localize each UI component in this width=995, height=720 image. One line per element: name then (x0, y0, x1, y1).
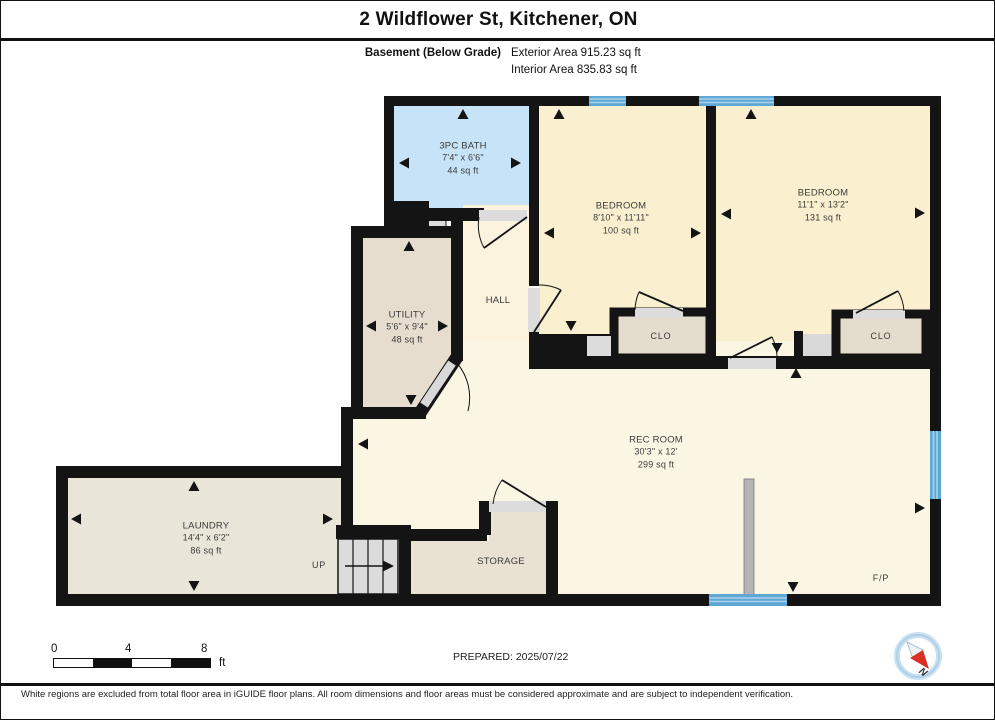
scale-num-4: 4 (125, 643, 131, 655)
room-label-hall: HALL (486, 295, 511, 307)
bedroom2-niche (801, 334, 833, 358)
room-label-bath: 3PC BATH 7'4" x 6'6" 44 sq ft (439, 140, 486, 177)
fireplace-post (744, 479, 754, 596)
room-label-bedroom2: BEDROOM 11'1" x 13'2" 131 sq ft (797, 187, 848, 224)
room-label-laundry: LAUNDRY 14'4" x 6'2" 86 sq ft (183, 520, 230, 557)
room-label-closet2: CLO (871, 331, 892, 343)
stairs-up-label: UP (312, 560, 326, 572)
scale-num-0: 0 (51, 643, 57, 655)
prepared-date: PREPARED: 2025/07/22 (453, 651, 568, 663)
stairs-icon (338, 539, 398, 594)
scale-unit: ft (219, 657, 225, 669)
floorplan-page: 2 Wildflower St, Kitchener, ON Basement … (0, 0, 995, 720)
room-label-recroom: REC ROOM 30'3" x 12' 299 sq ft (629, 434, 683, 471)
room-label-bedroom1: BEDROOM 8'10" x 11'11" 100 sq ft (593, 200, 649, 237)
footer-disclaimer: White regions are excluded from total fl… (21, 689, 981, 700)
scale-num-8: 8 (201, 643, 207, 655)
room-label-utility: UTILITY 5'6" x 9'4" 48 sq ft (386, 309, 428, 346)
footer-divider (1, 683, 995, 686)
room-label-fireplace: F/P (873, 573, 889, 585)
scale-segments (53, 658, 211, 668)
scale-bar: 0 4 8 ft (51, 643, 261, 673)
room-label-storage: STORAGE (477, 556, 525, 568)
floorplan-drawing (1, 1, 995, 720)
room-label-closet1: CLO (651, 331, 672, 343)
